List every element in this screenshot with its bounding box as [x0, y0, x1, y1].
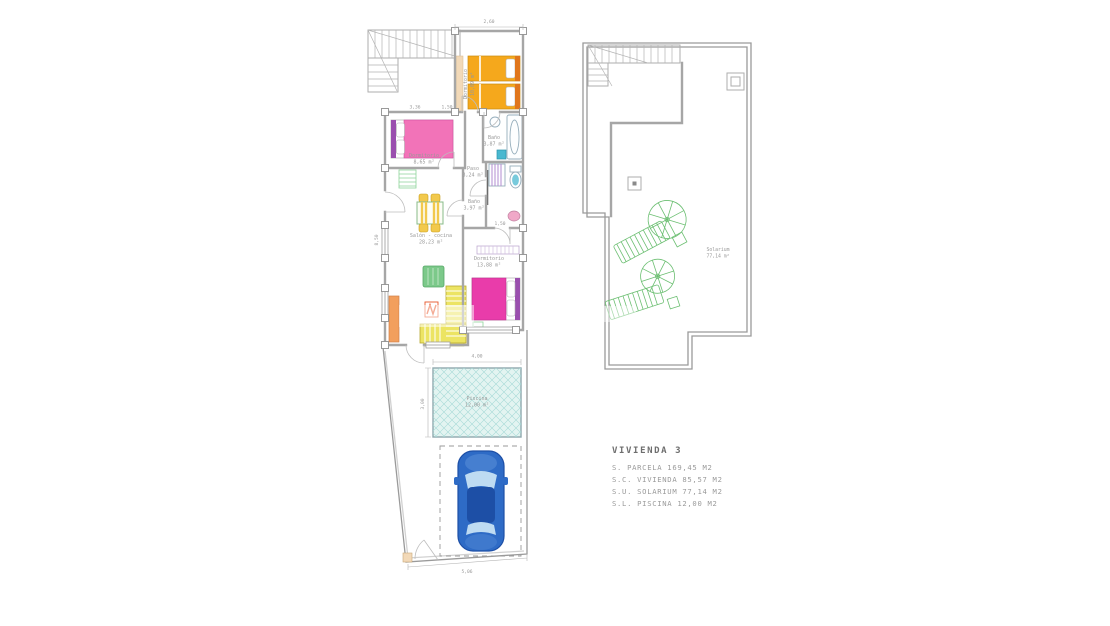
pillow — [507, 281, 515, 297]
bedroom1-area: 10,09 m² — [470, 72, 476, 96]
toilet-cistern — [510, 166, 521, 172]
roof-drain — [628, 177, 641, 190]
bidet — [497, 150, 506, 159]
legend-title: VIVIENDA 3 — [612, 446, 682, 456]
headboard — [515, 56, 520, 81]
bath1-area: 3,87 m² — [483, 142, 504, 148]
bedroom3-area: 13,88 m² — [477, 263, 501, 269]
bedroom1-label: Dormitorio — [463, 69, 469, 99]
sideboard — [389, 296, 399, 342]
legend-row-vivienda: S.C. VIVIENDA 85,57 M2 — [612, 475, 723, 484]
car — [454, 451, 508, 551]
car-roof — [467, 487, 495, 523]
watermark-text: M — [401, 302, 415, 330]
bedroom2-dim: 3,36 — [409, 105, 420, 111]
exterior-staircase — [368, 30, 460, 92]
paso-area: 3,24 m² — [462, 173, 483, 179]
legend-row-solarium: S.U. SOLARIUM 77,14 M2 — [612, 487, 723, 496]
bathtub-basin — [510, 120, 519, 154]
solarium-staircase — [588, 45, 680, 86]
legend-row-parcela: S. PARCELA 169,45 M2 — [612, 463, 713, 472]
pillow — [397, 140, 405, 154]
pool-width-dim: 4,00 — [471, 354, 482, 360]
left-mirror — [454, 477, 459, 485]
pillow — [506, 87, 515, 106]
pillow — [507, 300, 515, 316]
headboard — [515, 278, 520, 320]
blanket — [472, 278, 506, 320]
pillow — [506, 59, 515, 78]
armchair — [423, 266, 444, 287]
living-area: 28,23 m² — [419, 240, 443, 246]
main-floor-plan: 4,00 3,00 Piscina 12,00 m² — [368, 19, 527, 575]
pool-area: 12,00 m² — [465, 403, 489, 409]
parking-space — [440, 446, 521, 556]
bath2-area: 3,97 m² — [463, 206, 484, 212]
top-dim: 2,60 — [483, 19, 494, 25]
dining-table — [417, 194, 443, 232]
bath1-label: Baño — [488, 135, 500, 141]
left-dim: 8,50 — [374, 234, 380, 245]
pool: 4,00 3,00 Piscina 12,00 m² — [420, 354, 521, 438]
headboard — [391, 120, 396, 158]
wardrobe — [477, 246, 519, 254]
solarium-label: Solarium — [706, 247, 729, 253]
bench — [473, 322, 483, 327]
washbasin — [508, 211, 520, 221]
bath2-label: Baño — [468, 199, 480, 205]
living-label: Salón - cocina — [410, 232, 452, 239]
bedroom2-label: Dormitorio — [409, 153, 439, 159]
bathroom2-fixtures — [488, 164, 522, 221]
bath2-dim: 1,50 — [494, 221, 505, 227]
bottom-dim: 5,06 — [461, 569, 472, 575]
rug — [399, 170, 416, 188]
floor-plan-drawing: 4,00 3,00 Piscina 12,00 m² — [0, 0, 1110, 626]
paso-dim: 1,50 — [441, 105, 452, 111]
paso-label: Paso — [467, 166, 479, 172]
legend: VIVIENDA 3 S. PARCELA 169,45 M2 S.C. VIV… — [612, 446, 723, 508]
chimney — [727, 73, 744, 90]
gate-post — [403, 553, 412, 562]
sun-lounger-group-1 — [605, 194, 697, 273]
bedroom2-area: 8,65 m² — [413, 160, 434, 166]
bedroom3-label: Dormitorio — [474, 256, 504, 262]
solarium-area: 77,14 m² — [706, 254, 729, 260]
legend-row-piscina: S.L. PISCINA 12,00 M2 — [612, 499, 718, 508]
toilet-seat — [512, 174, 519, 185]
pillow — [397, 123, 405, 137]
headboard — [515, 84, 520, 109]
pool-label: Piscina — [466, 396, 487, 402]
right-mirror — [503, 477, 508, 485]
floor-plan-sheet: 4,00 3,00 Piscina 12,00 m² — [0, 0, 1110, 626]
shower — [489, 164, 505, 186]
pool-depth-dim: 3,00 — [420, 398, 426, 409]
